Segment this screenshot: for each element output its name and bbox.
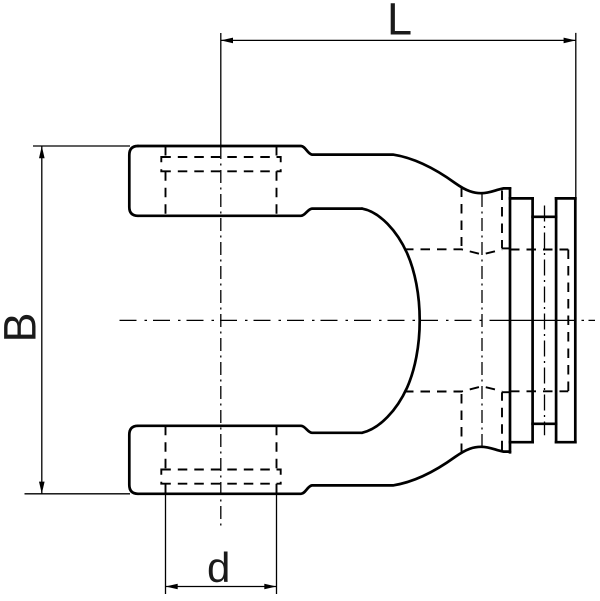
svg-text:L: L bbox=[387, 0, 412, 45]
svg-text:d: d bbox=[207, 544, 230, 591]
svg-text:B: B bbox=[0, 312, 46, 342]
